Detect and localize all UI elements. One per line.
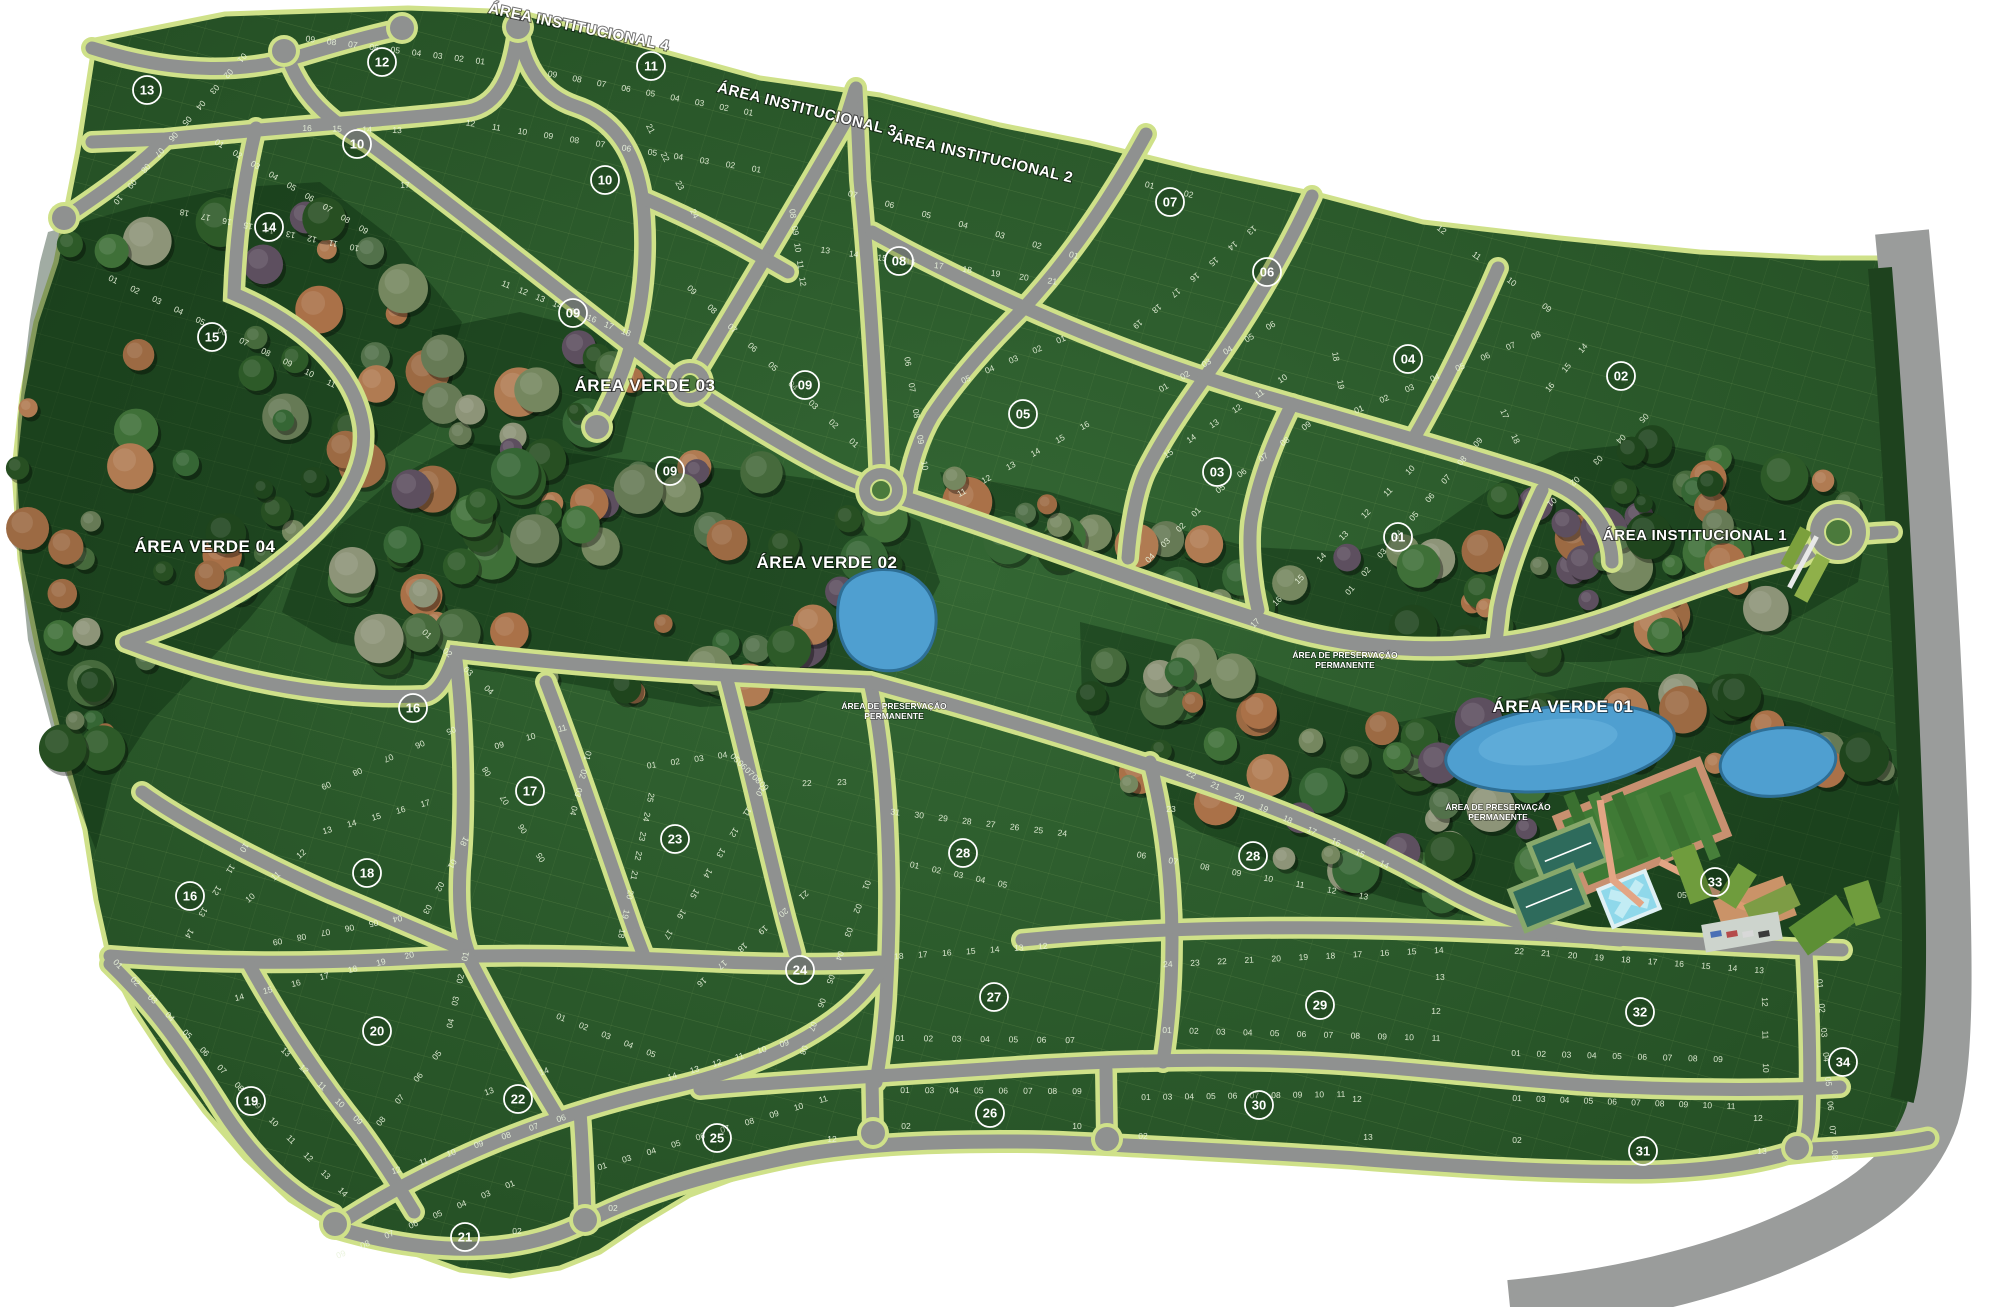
lot-number: 07	[348, 39, 359, 50]
tree-highlight	[81, 672, 98, 689]
block-number: 19	[237, 1087, 265, 1115]
tree-highlight	[798, 609, 818, 629]
lot-number: 12	[1038, 941, 1048, 952]
tree-highlight	[396, 474, 416, 494]
block-number-text: 32	[1633, 1005, 1647, 1020]
lot-number: 07	[595, 138, 606, 149]
area-label: ÁREA VERDE 02	[757, 553, 898, 572]
block-number: 27	[980, 983, 1008, 1011]
tree-highlight	[575, 488, 594, 507]
tree-highlight	[60, 234, 73, 247]
lot-number: 04	[980, 1034, 990, 1044]
tree-highlight	[1018, 505, 1028, 515]
lot-number: 04	[949, 1085, 959, 1095]
lot-number: 05	[1270, 1028, 1280, 1038]
lot-number: 25	[1033, 824, 1044, 835]
block-number: 20	[363, 1017, 391, 1045]
block-number: 17	[516, 777, 544, 805]
tree-highlight	[1305, 773, 1328, 796]
tree-highlight	[1216, 658, 1239, 681]
tree-highlight	[470, 492, 486, 508]
lot-number: 12	[1352, 1094, 1362, 1104]
lot-number: 23	[1190, 957, 1200, 967]
lot-number: 10	[1404, 1032, 1414, 1042]
block-number-text: 09	[566, 306, 580, 321]
tree-highlight	[1723, 678, 1745, 700]
road	[580, 1112, 585, 1218]
tree-highlight	[1337, 547, 1351, 561]
tree-highlight	[256, 481, 266, 491]
tree-highlight	[1532, 559, 1541, 568]
tree-highlight	[176, 453, 189, 466]
lot-number: 05	[1612, 1051, 1622, 1061]
lot-number: 22	[1514, 946, 1524, 957]
lot-number: 07	[907, 382, 918, 393]
block-number: 13	[133, 76, 161, 104]
block-number-text: 20	[370, 1024, 384, 1039]
lot-number: 06	[1228, 1091, 1238, 1101]
block-number-text: 25	[710, 1131, 724, 1146]
tree-highlight	[495, 617, 514, 636]
lot-number: 26	[1009, 821, 1020, 832]
tree-highlight	[503, 426, 517, 440]
tree-highlight	[1700, 473, 1713, 486]
lot-number: 13	[1014, 942, 1024, 953]
lot-number: 08	[911, 408, 922, 419]
block-number-text: 13	[140, 83, 154, 98]
block-number-text: 10	[598, 173, 612, 188]
lot-number: 12	[465, 117, 476, 128]
block-number: 09	[559, 299, 587, 327]
lot-number: 06	[1637, 1052, 1647, 1062]
tree-highlight	[1571, 549, 1588, 566]
lot-number: 05	[1677, 890, 1687, 900]
tree-highlight	[413, 582, 427, 596]
block-number: 22	[504, 1085, 532, 1113]
block-number: 25	[703, 1124, 731, 1152]
block-number: 15	[198, 323, 226, 351]
tree-highlight	[119, 413, 141, 435]
lot-number: 16	[1674, 958, 1684, 969]
block-number-text: 12	[375, 55, 389, 70]
lot-number: 04	[717, 749, 728, 760]
tree-highlight	[1302, 731, 1314, 743]
tree-highlight	[360, 619, 385, 644]
tree-highlight	[520, 372, 542, 394]
tree-highlight	[539, 503, 552, 516]
block-number: 26	[976, 1099, 1004, 1127]
block-number-text: 09	[663, 464, 677, 479]
lot-number: 04	[411, 47, 422, 58]
tree-highlight	[68, 713, 77, 722]
tree-highlight	[620, 470, 645, 495]
tree-highlight	[127, 343, 143, 359]
tree-highlight	[1423, 747, 1444, 768]
block-number-text: 14	[262, 220, 277, 235]
tree-highlight	[1080, 684, 1095, 699]
lot-number: 02	[608, 1203, 618, 1213]
lot-number: 10	[1072, 1121, 1082, 1131]
block-number-text: 22	[511, 1092, 525, 1107]
tree-highlight	[248, 249, 268, 269]
lot-number: 20	[1271, 953, 1281, 963]
block-number-text: 18	[360, 866, 374, 881]
tree-highlight	[129, 222, 153, 246]
lot-number: 03	[1562, 1049, 1572, 1059]
lot-number: 13	[1363, 1132, 1373, 1142]
tree-highlight	[716, 632, 730, 646]
tree-highlight	[1665, 557, 1675, 567]
site-plan-page: 0908070605040302010908070605040302010102…	[0, 0, 2000, 1307]
lot-number: 01	[475, 55, 486, 66]
lot-number: 21	[1244, 955, 1254, 965]
block-number: 24	[786, 956, 814, 984]
lot-number: 19	[1594, 952, 1604, 963]
lot-number: 03	[1216, 1026, 1226, 1036]
tree-highlight	[21, 400, 31, 410]
lot-number: 29	[938, 812, 949, 823]
cul-de-sac	[52, 206, 76, 230]
tree-highlight	[1707, 755, 1718, 766]
tree-highlight	[331, 435, 350, 454]
lot-number: 14	[990, 944, 1000, 955]
lot-number: 09	[1293, 1090, 1303, 1100]
block-number: 18	[353, 859, 381, 887]
lot-number: 03	[1536, 1094, 1546, 1104]
lot-number: 12	[827, 1134, 837, 1144]
block-number: 12	[368, 48, 396, 76]
tree-highlight	[243, 359, 261, 377]
tree-highlight	[656, 616, 665, 625]
tree-highlight	[1846, 737, 1871, 762]
lot-number: 04	[1587, 1050, 1597, 1060]
tree-highlight	[1153, 742, 1164, 753]
lot-number: 02	[1817, 1003, 1828, 1014]
area-label: ÁREA VERDE 03	[575, 376, 716, 395]
lot-number: 08	[1830, 1150, 1841, 1161]
lot-number: 02	[1138, 1131, 1148, 1141]
tree-highlight	[364, 345, 379, 360]
lot-number: 17	[400, 180, 410, 190]
block-number-text: 26	[983, 1106, 997, 1121]
block-number: 34	[1829, 1048, 1857, 1076]
tree-highlight	[47, 623, 63, 639]
lot-number: 03	[1163, 1092, 1173, 1102]
tree-highlight	[772, 631, 794, 653]
block-number: 31	[1629, 1137, 1657, 1165]
lot-number: 02	[1189, 1026, 1199, 1036]
tree-highlight	[335, 552, 358, 575]
lot-number: 31	[890, 806, 901, 817]
lake-verde-02	[838, 569, 937, 670]
tree-highlight	[385, 269, 410, 294]
tree-highlight	[11, 512, 33, 534]
lot-number: 06	[1297, 1029, 1307, 1039]
tree-highlight	[1208, 731, 1225, 748]
lot-number: 12	[1753, 1113, 1763, 1123]
tree-highlight	[113, 448, 136, 471]
tree-highlight	[51, 582, 66, 597]
lot-number: 12	[1431, 1006, 1441, 1016]
lot-number: 05	[974, 1085, 984, 1095]
tree-highlight	[45, 730, 69, 754]
tree-highlight	[687, 462, 699, 474]
lot-number: 14	[848, 248, 859, 259]
lot-number: 10	[1761, 1063, 1771, 1073]
lot-number: 08	[1688, 1053, 1698, 1063]
block-number-text: 06	[1260, 265, 1274, 280]
block-number: 30	[1245, 1091, 1273, 1119]
tree-highlight	[1402, 549, 1424, 571]
lot-number: 04	[1184, 1091, 1194, 1101]
block-number-text: 30	[1252, 1098, 1266, 1113]
lot-number: 03	[952, 1034, 962, 1044]
lot-number: 03	[433, 50, 444, 61]
lot-number: 16	[1380, 948, 1390, 958]
block-number-text: 31	[1636, 1144, 1650, 1159]
lot-number: 13	[1754, 965, 1764, 976]
block-number: 23	[661, 825, 689, 853]
lot-number: 18	[962, 264, 973, 275]
preservation-label-line2: PERMANENTE	[1468, 812, 1528, 822]
lot-number: 02	[725, 159, 736, 170]
tree-highlight	[1344, 749, 1358, 763]
lot-number: 02	[924, 1033, 934, 1043]
lot-number: 05	[647, 147, 658, 158]
lot-number: 30	[914, 809, 925, 820]
tree-highlight	[447, 552, 465, 570]
preservation-label-line1: ÁREA DE PRESERVAÇÃO	[1292, 650, 1398, 660]
block-number-text: 04	[1401, 352, 1416, 367]
block-number: 02	[1607, 362, 1635, 390]
lot-number: 10	[517, 126, 528, 137]
lot-number: 22	[1217, 956, 1227, 966]
lot-number: 06	[1607, 1096, 1617, 1106]
tree-highlight	[566, 334, 583, 351]
block-number-text: 33	[1708, 875, 1722, 890]
tree-highlight	[1478, 600, 1488, 610]
lot-number: 23	[1166, 804, 1176, 814]
tree-highlight	[459, 398, 474, 413]
block-number-text: 11	[644, 59, 658, 74]
lot-number: 08	[787, 208, 798, 219]
tree-highlight	[1749, 591, 1772, 614]
block-number: 09	[656, 457, 684, 485]
tree-highlight	[1708, 448, 1721, 461]
lot-number: 18	[1325, 950, 1335, 960]
tree-highlight	[1815, 472, 1826, 483]
lot-number: 01	[895, 1033, 905, 1043]
cul-de-sac	[390, 16, 414, 40]
lot-number: 01	[646, 759, 657, 770]
cul-de-sac	[573, 1208, 597, 1232]
lot-number: 24	[1163, 959, 1173, 969]
area-label: ÁREA INSTITUCIONAL 1	[1603, 527, 1787, 544]
tree-highlight	[1767, 458, 1791, 482]
tree-highlight	[946, 469, 958, 481]
tree-highlight	[1636, 496, 1645, 505]
lot-number: 07	[1663, 1052, 1673, 1062]
block-number: 05	[1009, 400, 1037, 428]
lot-number: 05	[1584, 1095, 1594, 1105]
lot-number: 09	[915, 434, 926, 445]
lot-number: 24	[1057, 827, 1068, 838]
block-number-text: 21	[458, 1230, 472, 1245]
cul-de-sac	[272, 39, 296, 63]
tree-highlight	[1467, 534, 1488, 555]
tree-highlight	[452, 425, 463, 436]
lot-number: 04	[1560, 1095, 1570, 1105]
lot-number: 10	[1314, 1089, 1324, 1099]
lot-number: 19	[1298, 952, 1308, 962]
tree-highlight	[1275, 850, 1286, 861]
lot-number: 03	[699, 155, 710, 166]
block-number: 10	[591, 166, 619, 194]
block-number: 08	[885, 247, 913, 275]
lot-number: 03	[1819, 1027, 1830, 1038]
lot-number: 01	[1162, 1025, 1172, 1035]
lot-number: 22	[802, 778, 812, 788]
block-number: 11	[637, 52, 665, 80]
block-number-text: 28	[956, 846, 970, 861]
lot-number: 05	[1009, 1034, 1019, 1044]
block-number-text: 01	[1391, 530, 1405, 545]
lot-number: 13	[1757, 1146, 1767, 1156]
block-number: 14	[255, 213, 283, 241]
lot-number: 07	[1827, 1125, 1838, 1136]
lot-number: 01	[751, 163, 762, 174]
tree-highlight	[1468, 578, 1485, 595]
tree-highlight	[1185, 694, 1196, 705]
tree-highlight	[9, 459, 21, 471]
lot-number: 23	[837, 777, 847, 787]
lot-number: 17	[1647, 956, 1657, 967]
block-number-text: 03	[1210, 465, 1224, 480]
lot-number: 14	[1727, 963, 1737, 974]
block-number-text: 34	[1836, 1055, 1851, 1070]
lot-number: 02	[670, 756, 681, 767]
tree-highlight	[1252, 759, 1273, 780]
lot-number: 17	[918, 949, 928, 960]
area-label: ÁREA VERDE 04	[135, 537, 276, 556]
lot-number: 06	[902, 356, 913, 367]
tree-highlight	[746, 456, 767, 477]
block-number: 03	[1203, 458, 1231, 486]
block-number: 16	[399, 694, 427, 722]
tree-highlight	[83, 513, 93, 523]
lot-number: 16	[302, 123, 312, 133]
lot-number: 13	[392, 125, 402, 135]
tree-highlight	[303, 470, 316, 483]
lot-number: 13	[820, 244, 831, 255]
lot-number: 14	[1434, 945, 1444, 955]
lot-number: 09	[1679, 1099, 1689, 1109]
tree-highlight	[362, 369, 381, 388]
lot-number: 02	[1536, 1049, 1546, 1059]
roundabout-island	[1826, 520, 1850, 544]
tree-highlight	[53, 533, 71, 551]
lot-number: 08	[326, 36, 337, 47]
tree-highlight	[1430, 837, 1454, 861]
lot-number: 15	[966, 946, 976, 957]
tree-highlight	[1386, 745, 1400, 759]
tree-highlight	[1581, 592, 1591, 602]
lot-number: 12	[797, 276, 808, 287]
block-number: 10	[343, 130, 371, 158]
block-number: 04	[1394, 345, 1422, 373]
lot-number: 01	[900, 1085, 910, 1095]
lot-number: 09	[305, 33, 316, 44]
lot-number: 18	[1621, 954, 1631, 965]
tree-highlight	[1245, 697, 1263, 715]
preservation-label-line1: ÁREA DE PRESERVAÇÃO	[1445, 802, 1551, 812]
tree-highlight	[1369, 715, 1386, 732]
lot-number: 08	[569, 134, 580, 145]
preservation-label-line2: PERMANENTE	[1315, 660, 1375, 670]
cul-de-sac	[323, 1212, 347, 1236]
lot-number: 06	[1037, 1035, 1047, 1045]
tree-highlight	[426, 339, 448, 361]
tree-highlight	[772, 533, 788, 549]
lot-number: 01	[1512, 1093, 1522, 1103]
lot-number: 19	[990, 268, 1001, 279]
lot-number: 06	[999, 1086, 1009, 1096]
block-number: 28	[949, 839, 977, 867]
tree-highlight	[566, 510, 585, 529]
lot-number: 11	[1727, 1101, 1736, 1111]
lot-number: 01	[1511, 1048, 1521, 1058]
lot-number: 28	[962, 815, 973, 826]
lot-number: 01	[1815, 979, 1826, 990]
lot-number: 11	[1760, 1030, 1770, 1039]
lot-number: 09	[543, 130, 554, 141]
lot-number: 15	[1407, 946, 1417, 956]
lot-number: 07	[1023, 1086, 1033, 1096]
block-number: 32	[1626, 998, 1654, 1026]
tree-highlight	[838, 508, 852, 522]
tree-highlight	[156, 563, 166, 573]
lot-number: 18	[894, 951, 904, 962]
tree-highlight	[1122, 777, 1131, 786]
tree-highlight	[746, 638, 760, 652]
lot-number: 10	[792, 242, 803, 253]
lot-number: 05	[1823, 1076, 1834, 1087]
tree-highlight	[1614, 481, 1627, 494]
block-number: 28	[1239, 842, 1267, 870]
lot-number: 09	[1713, 1054, 1723, 1064]
tree-highlight	[1277, 569, 1295, 587]
tree-highlight	[211, 517, 231, 537]
tree-highlight	[1555, 512, 1569, 526]
preservation-label-line1: ÁREA DE PRESERVAÇÃO	[841, 701, 947, 711]
block-number-text: 08	[892, 254, 906, 269]
lot-number: 17	[1353, 949, 1363, 959]
lot-number: 03	[925, 1085, 935, 1095]
tree-highlight	[388, 530, 407, 549]
tree-highlight	[1324, 848, 1333, 857]
lot-number: 02	[901, 1121, 911, 1131]
tree-highlight	[360, 240, 374, 254]
lot-number: 10	[1702, 1100, 1712, 1110]
block-number-text: 09	[798, 378, 812, 393]
lot-number: 15	[1701, 960, 1711, 971]
lot-number: 07	[1065, 1035, 1075, 1045]
tree-highlight	[99, 238, 116, 255]
lot-number: 09	[790, 225, 801, 236]
lot-number: 08	[1655, 1098, 1665, 1108]
block-number-text: 02	[1614, 369, 1628, 384]
site-plan-map: 0908070605040302010908070605040302010102…	[0, 0, 2000, 1307]
